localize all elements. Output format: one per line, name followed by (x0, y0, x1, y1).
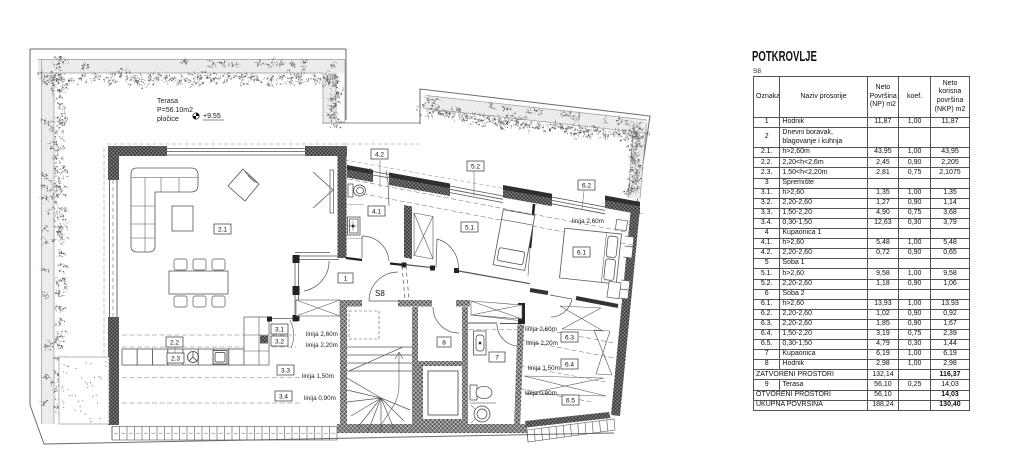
svg-text:S8: S8 (375, 289, 385, 298)
svg-text:8: 8 (442, 339, 446, 346)
svg-text:Terasa: Terasa (157, 98, 178, 105)
svg-text:6.3: 6.3 (565, 334, 574, 341)
svg-text:4.1: 4.1 (372, 208, 381, 215)
svg-text:linija 2,60m: linija 2,60m (306, 331, 338, 338)
svg-text:4.2: 4.2 (375, 151, 384, 158)
svg-text:5.1: 5.1 (465, 224, 474, 231)
svg-text:7: 7 (495, 354, 499, 361)
svg-text:linija 0,90m: linija 0,90m (525, 390, 557, 397)
svg-text:6.5: 6.5 (566, 397, 575, 404)
svg-text:+9.55: +9.55 (203, 113, 221, 120)
svg-text:3.4: 3.4 (279, 393, 288, 400)
svg-text:2.2: 2.2 (170, 339, 179, 346)
svg-text:2.3: 2.3 (171, 355, 180, 362)
svg-text:pločice: pločice (157, 116, 179, 123)
svg-text:linija 2,20m: linija 2,20m (306, 342, 338, 349)
svg-text:3.2: 3.2 (275, 338, 284, 345)
svg-text:linija 0,90m: linija 0,90m (304, 395, 336, 402)
svg-text:3.3: 3.3 (281, 367, 290, 374)
svg-text:1: 1 (344, 275, 348, 282)
svg-text:6.2: 6.2 (582, 182, 591, 189)
svg-text:P=56.10m2: P=56.10m2 (157, 107, 193, 114)
svg-text:linija 2,20m: linija 2,20m (526, 340, 558, 347)
svg-text:3.1: 3.1 (275, 326, 284, 333)
svg-text:6.4: 6.4 (565, 361, 574, 368)
svg-text:2.1: 2.1 (218, 226, 227, 233)
svg-text:linija 1,50m: linija 1,50m (528, 365, 560, 372)
svg-text:linija 2,60m: linija 2,60m (572, 218, 604, 225)
svg-text:linija 2,60m: linija 2,60m (525, 326, 557, 333)
svg-text:6.1: 6.1 (577, 249, 586, 256)
svg-text:linija 1,50m: linija 1,50m (302, 373, 334, 380)
svg-text:5.2: 5.2 (471, 163, 480, 170)
